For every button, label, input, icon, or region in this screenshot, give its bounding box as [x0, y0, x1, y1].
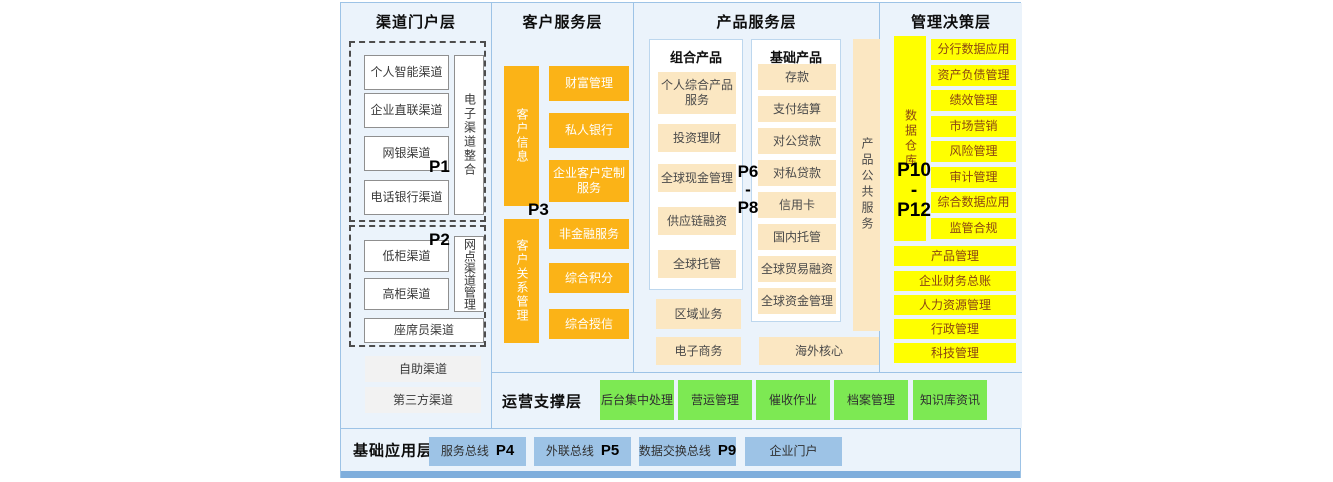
basic-products-title: 基础产品 — [752, 40, 840, 66]
channel-item: 企业直联渠道 — [364, 93, 449, 128]
management-item: 审计管理 — [931, 167, 1016, 188]
product-layer-title: 产品服务层 — [634, 11, 879, 32]
customer-service-item: 企业客户定制服务 — [549, 160, 629, 202]
foundation-item-label: 外联总线 — [546, 444, 594, 459]
channel-item: 座席员渠道 — [364, 318, 484, 343]
management-item: 监管合规 — [931, 218, 1016, 239]
product-item: 对私贷款 — [758, 160, 836, 186]
foundation-item: 服务总线 P4 — [429, 437, 526, 466]
customer-layer-title: 客户服务层 — [492, 11, 633, 32]
branch-channel-mgmt-bar: 网点渠道管理 — [454, 236, 484, 312]
customer-service-item: 财富管理 — [549, 66, 629, 101]
foundation-layer-title: 基础应用层 — [353, 440, 433, 461]
product-item: 全球贸易融资 — [758, 256, 836, 282]
foundation-item: 数据交换总线 P9 — [639, 437, 736, 466]
product-item: 对公贷款 — [758, 128, 836, 154]
customer-relationship-label: 客户关系管理 — [514, 239, 529, 323]
channel-item: 第三方渠道 — [365, 387, 481, 413]
product-item: 全球托管 — [658, 250, 736, 278]
product-service-layer: 产品服务层 组合产品 个人综合产品服务 投资理财 全球现金管理 供应链融资 全球… — [634, 3, 880, 372]
p4-label: P4 — [496, 442, 514, 461]
channel-item: 自助渠道 — [365, 356, 481, 382]
product-item: 海外核心 — [759, 337, 879, 365]
combo-products-title: 组合产品 — [650, 40, 742, 66]
product-common-service-bar: 产品公共服务 — [853, 39, 880, 331]
product-item: 全球资金管理 — [758, 288, 836, 314]
branch-channel-mgmt-label: 网点渠道管理 — [462, 238, 477, 310]
p3-label: P3 — [528, 201, 549, 220]
management-item: 科技管理 — [894, 343, 1016, 363]
management-layer-title: 管理决策层 — [880, 11, 1022, 32]
management-item: 绩效管理 — [931, 90, 1016, 111]
channel-item: 个人智能渠道 — [364, 55, 449, 90]
p8-label: P8 — [738, 199, 759, 217]
operations-item: 营运管理 — [678, 380, 752, 420]
operations-item: 后台集中处理 — [600, 380, 674, 420]
product-item: 区域业务 — [656, 299, 741, 329]
operations-item: 知识库资讯 — [913, 380, 987, 420]
channel-layer-title: 渠道门户层 — [341, 11, 491, 32]
customer-service-layer: 客户服务层 客户信息 财富管理 私人银行 企业客户定制服务 P3 客户关系管理 … — [492, 3, 634, 372]
customer-info-label: 客户信息 — [514, 108, 529, 164]
customer-service-item: 综合授信 — [549, 309, 629, 339]
p10-p12-label: P10 - P12 — [886, 161, 942, 221]
management-decision-layer: 管理决策层 数据仓库 分行数据应用 资产负债管理 绩效管理 市场营销 风险管理 … — [880, 3, 1022, 372]
foundation-item: 外联总线 P5 — [534, 437, 631, 466]
management-item: 行政管理 — [894, 319, 1016, 339]
management-item: 人力资源管理 — [894, 295, 1016, 315]
combo-products-panel: 组合产品 个人综合产品服务 投资理财 全球现金管理 供应链融资 全球托管 — [649, 39, 743, 290]
management-item: 分行数据应用 — [931, 39, 1016, 60]
channel-item: 电话银行渠道 — [364, 180, 449, 215]
customer-service-item: 私人银行 — [549, 113, 629, 148]
p-range-dash: - — [911, 181, 917, 201]
foundation-application-layer: 基础应用层 服务总线 P4 外联总线 P5 数据交换总线 P9 企业门户 — [341, 428, 1020, 471]
operations-item: 档案管理 — [834, 380, 908, 420]
e-channel-integration-label: 电子渠道整合 — [462, 93, 477, 177]
customer-relationship-bar: 客户关系管理 — [504, 219, 539, 343]
p-range-dash: - — [745, 181, 751, 199]
management-item: 产品管理 — [894, 246, 1016, 266]
p10-label: P10 — [897, 161, 931, 181]
customer-service-item: 非金融服务 — [549, 219, 629, 249]
channel-group-2: 低柜渠道 高柜渠道 网点渠道管理 座席员渠道 — [349, 225, 486, 347]
product-item: 国内托管 — [758, 224, 836, 250]
management-item: 市场营销 — [931, 116, 1016, 137]
p2-label: P2 — [429, 231, 450, 250]
management-item: 企业财务总账 — [894, 271, 1016, 291]
product-item: 存款 — [758, 64, 836, 90]
management-item: 综合数据应用 — [931, 192, 1016, 213]
channel-portal-layer: 渠道门户层 个人智能渠道 企业直联渠道 网银渠道 电话银行渠道 电子渠道整合 P… — [341, 3, 492, 428]
p5-label: P5 — [601, 442, 619, 461]
management-item: 风险管理 — [931, 141, 1016, 162]
product-item: 全球现金管理 — [658, 164, 736, 192]
p12-label: P12 — [897, 201, 931, 221]
product-common-service-label: 产品公共服务 — [859, 137, 874, 233]
foundation-item-label: 数据交换总线 — [639, 444, 711, 459]
product-item: 投资理财 — [658, 124, 736, 152]
p9-label: P9 — [718, 442, 736, 461]
operations-item: 催收作业 — [756, 380, 830, 420]
product-item: 供应链融资 — [658, 207, 736, 235]
foundation-item-label: 企业门户 — [769, 444, 817, 459]
channel-group-1: 个人智能渠道 企业直联渠道 网银渠道 电话银行渠道 电子渠道整合 — [349, 41, 486, 222]
product-item: 信用卡 — [758, 192, 836, 218]
product-item: 支付结算 — [758, 96, 836, 122]
product-item: 个人综合产品服务 — [658, 72, 736, 114]
p6-p8-label: P6 - P8 — [730, 163, 766, 217]
foundation-item-label: 服务总线 — [441, 444, 489, 459]
foundation-item: 企业门户 — [745, 437, 842, 466]
channel-item: 高柜渠道 — [364, 278, 449, 310]
operations-layer-title: 运营支撑层 — [502, 390, 582, 411]
product-item: 电子商务 — [656, 337, 741, 365]
bottom-accent-strip — [341, 471, 1020, 478]
architecture-diagram: 渠道门户层 个人智能渠道 企业直联渠道 网银渠道 电话银行渠道 电子渠道整合 P… — [340, 2, 1021, 478]
customer-service-item: 综合积分 — [549, 263, 629, 293]
p6-label: P6 — [738, 163, 759, 181]
operations-support-layer: 运营支撑层 后台集中处理 营运管理 催收作业 档案管理 知识库资讯 — [492, 372, 1022, 428]
customer-info-bar: 客户信息 — [504, 66, 539, 206]
p1-label: P1 — [429, 158, 450, 177]
management-item: 资产负债管理 — [931, 65, 1016, 86]
e-channel-integration-bar: 电子渠道整合 — [454, 55, 484, 215]
